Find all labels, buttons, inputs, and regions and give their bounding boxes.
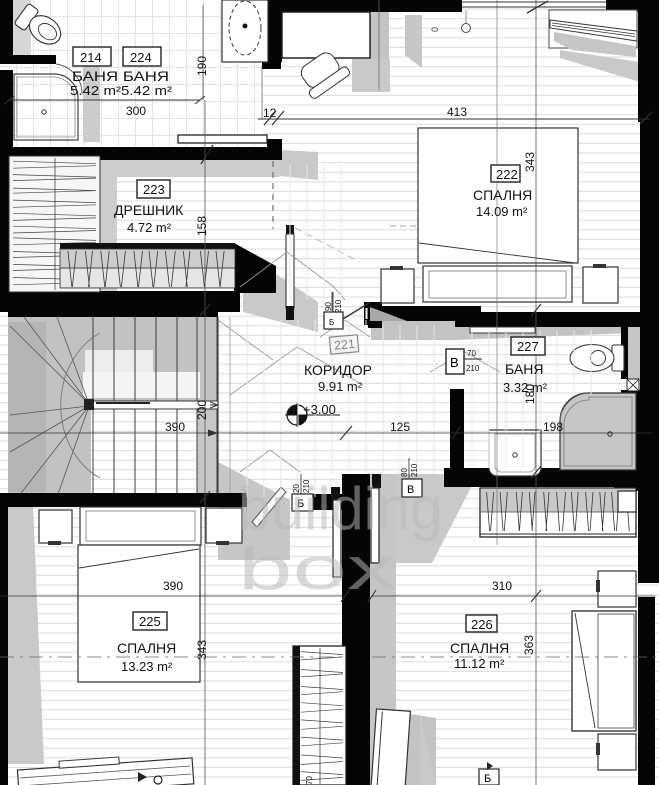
svg-text:190: 190 bbox=[195, 56, 209, 76]
svg-text:343: 343 bbox=[523, 152, 537, 172]
svg-text:Б: Б bbox=[484, 773, 491, 785]
svg-text:390: 390 bbox=[165, 420, 185, 434]
svg-text:70: 70 bbox=[467, 349, 476, 358]
svg-text:СПАЛНЯ: СПАЛНЯ bbox=[117, 640, 176, 656]
svg-text:4.72 m²: 4.72 m² bbox=[127, 220, 172, 235]
svg-text:200: 200 bbox=[195, 400, 209, 420]
svg-text:210: 210 bbox=[466, 364, 480, 373]
svg-text:В: В bbox=[450, 355, 459, 370]
svg-text:12: 12 bbox=[263, 106, 277, 120]
svg-text:5.42 m²5.42 m²: 5.42 m²5.42 m² bbox=[70, 83, 173, 98]
svg-text:413: 413 bbox=[447, 105, 467, 119]
svg-text:building: building bbox=[238, 475, 443, 542]
svg-text:box: box bbox=[238, 535, 396, 602]
svg-text:198: 198 bbox=[543, 420, 563, 434]
svg-text:14.09 m²: 14.09 m² bbox=[476, 204, 528, 219]
svg-text:70: 70 bbox=[305, 776, 314, 785]
svg-text:ДРЕШНИК: ДРЕШНИК bbox=[114, 202, 184, 218]
svg-text:210: 210 bbox=[334, 299, 343, 313]
svg-text:11.12 m²: 11.12 m² bbox=[454, 656, 505, 671]
svg-text:КОРИДОР: КОРИДОР bbox=[304, 362, 372, 378]
svg-text:223: 223 bbox=[143, 182, 165, 197]
svg-text:310: 310 bbox=[492, 579, 512, 593]
svg-text:13.23 m²: 13.23 m² bbox=[121, 659, 173, 674]
svg-text:343: 343 bbox=[195, 640, 209, 660]
svg-text:125: 125 bbox=[390, 420, 410, 434]
svg-text:158: 158 bbox=[195, 216, 209, 236]
svg-text:226: 226 bbox=[471, 617, 493, 632]
svg-text:363: 363 bbox=[522, 635, 536, 655]
svg-text:СПАЛНЯ: СПАЛНЯ bbox=[473, 187, 532, 203]
svg-text:3.32 m²: 3.32 m² bbox=[503, 380, 548, 395]
svg-text:225: 225 bbox=[139, 614, 161, 629]
svg-text:224: 224 bbox=[130, 50, 152, 65]
svg-text:БАНЯ: БАНЯ bbox=[505, 361, 543, 377]
svg-text:227: 227 bbox=[517, 339, 539, 354]
svg-text:221: 221 bbox=[334, 337, 356, 353]
svg-text:+3.00: +3.00 bbox=[303, 402, 336, 417]
svg-text:300: 300 bbox=[126, 104, 146, 118]
svg-text:Б: Б bbox=[329, 318, 334, 327]
svg-text:214: 214 bbox=[80, 50, 102, 65]
svg-text:СПАЛНЯ: СПАЛНЯ bbox=[450, 640, 509, 656]
svg-text:9.91 m²: 9.91 m² bbox=[318, 379, 363, 394]
svg-text:0: 0 bbox=[430, 27, 440, 32]
svg-text:222: 222 bbox=[496, 167, 518, 182]
svg-text:390: 390 bbox=[163, 579, 183, 593]
svg-text:БАНЯ БАНЯ: БАНЯ БАНЯ bbox=[72, 68, 169, 84]
